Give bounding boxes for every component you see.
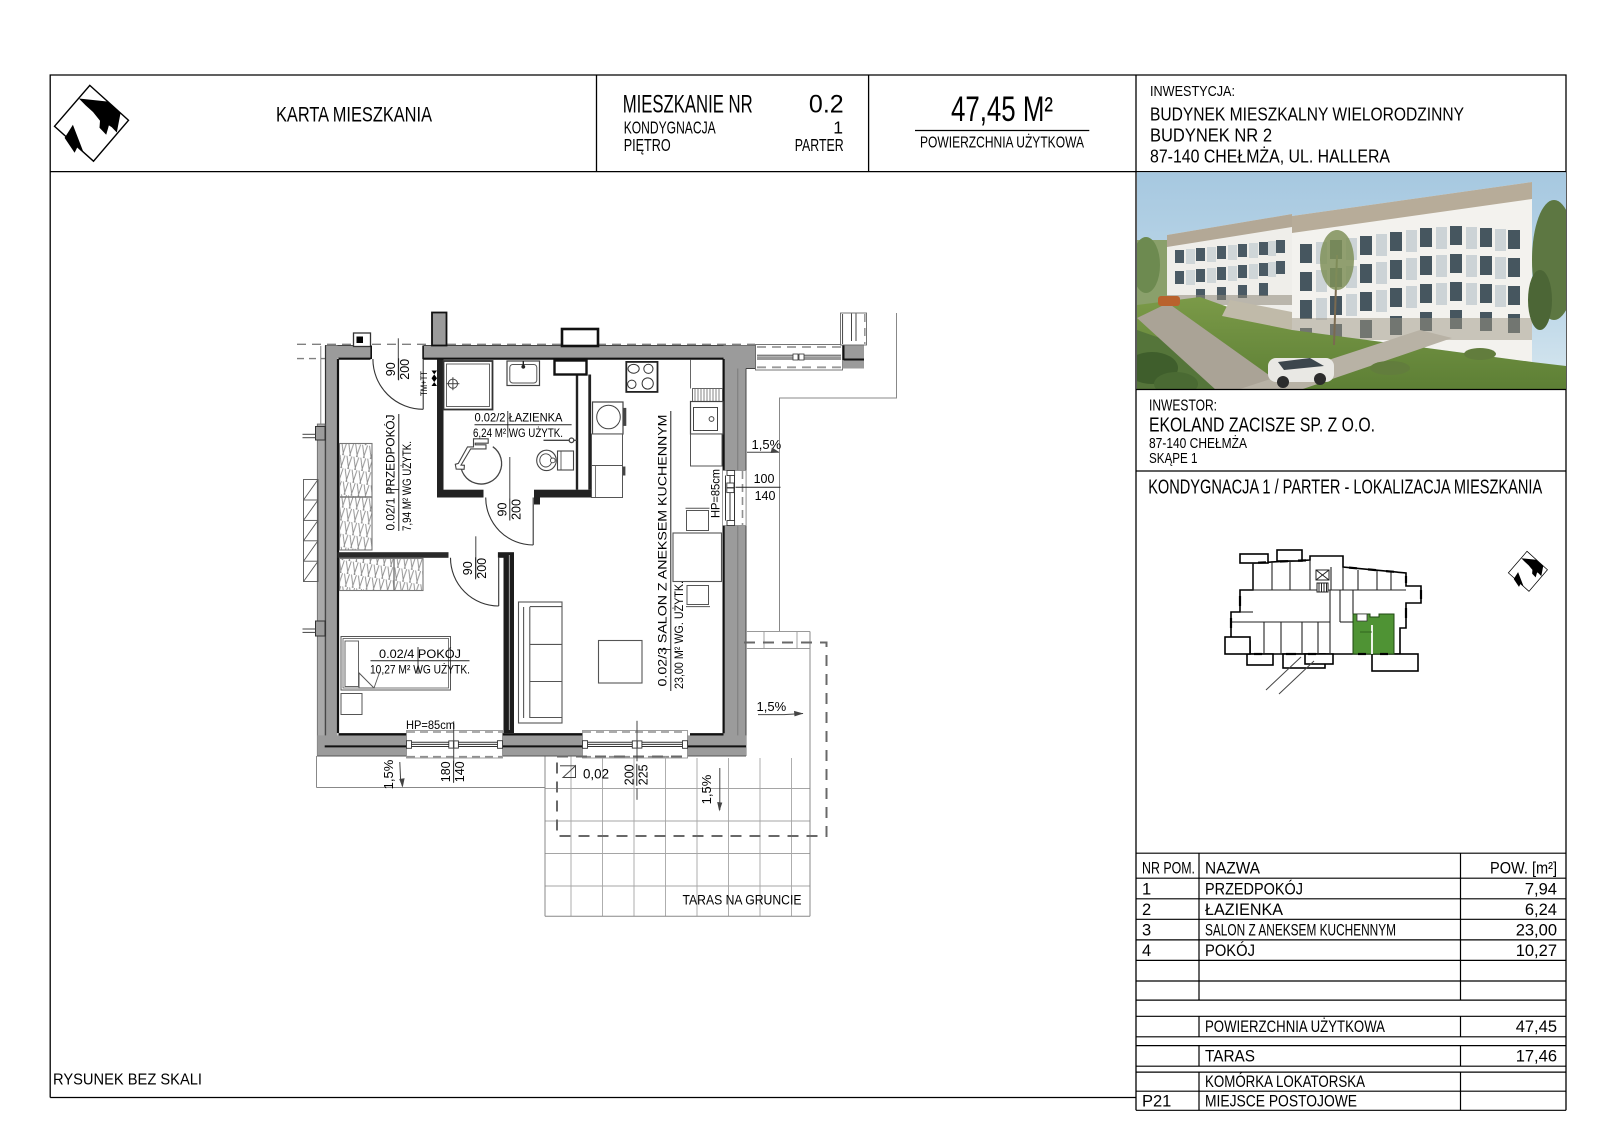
svg-text:KOMÓRKA LOKATORSKA: KOMÓRKA LOKATORSKA xyxy=(1205,1072,1365,1091)
svg-text:90: 90 xyxy=(461,561,475,575)
svg-text:1,5%: 1,5% xyxy=(381,759,396,789)
svg-text:PIĘTRO: PIĘTRO xyxy=(624,135,671,155)
svg-text:BUDYNEK NR 2: BUDYNEK NR 2 xyxy=(1150,125,1272,146)
svg-text:1,5%: 1,5% xyxy=(757,699,787,714)
svg-text:POW. [m²]: POW. [m²] xyxy=(1490,859,1557,877)
svg-text:90: 90 xyxy=(495,503,509,517)
svg-text:6,24 M² WG UŻYTK.: 6,24 M² WG UŻYTK. xyxy=(473,426,563,440)
svg-text:0.02/4 POKÓJ: 0.02/4 POKÓJ xyxy=(379,646,461,661)
svg-text:17,46: 17,46 xyxy=(1516,1048,1557,1066)
svg-text:EKOLAND ZACISZE SP. Z O.O.: EKOLAND ZACISZE SP. Z O.O. xyxy=(1149,414,1375,437)
svg-text:200: 200 xyxy=(398,359,412,380)
svg-text:1,5%: 1,5% xyxy=(699,774,714,804)
svg-text:6,24: 6,24 xyxy=(1525,901,1557,919)
svg-text:POKÓJ: POKÓJ xyxy=(1205,941,1255,960)
svg-text:TARAS: TARAS xyxy=(1205,1048,1255,1066)
svg-text:0,02: 0,02 xyxy=(583,767,609,782)
svg-text:23,00 M² WG. UŻYTK.: 23,00 M² WG. UŻYTK. xyxy=(672,581,686,689)
svg-text:140: 140 xyxy=(755,489,776,503)
svg-text:P21: P21 xyxy=(1142,1092,1171,1110)
svg-text:0.2: 0.2 xyxy=(809,91,844,119)
svg-text:0.02/1 PRZEDPOKÓJ: 0.02/1 PRZEDPOKÓJ xyxy=(383,415,398,531)
svg-text:3: 3 xyxy=(1142,922,1151,940)
svg-text:KONDYGNACJA 1 / PARTER - LOKAL: KONDYGNACJA 1 / PARTER - LOKALIZACJA MIE… xyxy=(1148,476,1542,498)
svg-text:BUDYNEK MIESZKALNY WIELORODZIN: BUDYNEK MIESZKALNY WIELORODZINNY xyxy=(1150,104,1464,125)
svg-text:7,94: 7,94 xyxy=(1525,881,1557,899)
svg-text:23,00: 23,00 xyxy=(1516,922,1557,940)
svg-text:225: 225 xyxy=(636,764,650,785)
svg-text:KARTA MIESZKANIA: KARTA MIESZKANIA xyxy=(276,104,432,127)
svg-text:10,27: 10,27 xyxy=(1516,942,1557,960)
svg-text:NR POM.: NR POM. xyxy=(1142,859,1195,877)
svg-text:1,5%: 1,5% xyxy=(752,437,782,452)
svg-text:140: 140 xyxy=(453,761,467,782)
svg-text:HP=85cm: HP=85cm xyxy=(406,718,455,732)
svg-text:47,45: 47,45 xyxy=(1516,1018,1557,1036)
svg-text:100: 100 xyxy=(754,472,775,486)
svg-text:RYSUNEK BEZ SKALI: RYSUNEK BEZ SKALI xyxy=(53,1072,202,1089)
svg-text:MIESZKANIE NR: MIESZKANIE NR xyxy=(623,91,753,119)
svg-text:TARAS NA GRUNCIE: TARAS NA GRUNCIE xyxy=(683,893,802,908)
svg-text:TM+TT: TM+TT xyxy=(419,371,430,396)
svg-text:180: 180 xyxy=(439,761,453,782)
svg-text:MIEJSCE POSTOJOWE: MIEJSCE POSTOJOWE xyxy=(1205,1092,1357,1110)
svg-text:POWIERZCHNIA UŻYTKOWA: POWIERZCHNIA UŻYTKOWA xyxy=(920,132,1084,151)
svg-text:4: 4 xyxy=(1142,942,1151,960)
svg-text:200: 200 xyxy=(509,499,523,520)
svg-text:PRZEDPOKÓJ: PRZEDPOKÓJ xyxy=(1205,880,1303,899)
svg-text:200: 200 xyxy=(475,558,489,579)
svg-text:90: 90 xyxy=(384,362,398,376)
svg-text:200: 200 xyxy=(622,764,636,785)
svg-text:87-140 CHEŁMŻA, UL. HALLERA: 87-140 CHEŁMŻA, UL. HALLERA xyxy=(1150,146,1391,167)
svg-text:1: 1 xyxy=(1142,881,1151,899)
svg-text:HP=85cm: HP=85cm xyxy=(709,469,723,518)
svg-text:NAZWA: NAZWA xyxy=(1205,859,1260,877)
svg-text:7,94 M² WG UŻYTK.: 7,94 M² WG UŻYTK. xyxy=(400,441,414,531)
svg-text:0.02/3 SALON Z ANEKSEM KUCHENN: 0.02/3 SALON Z ANEKSEM KUCHENNYM xyxy=(655,415,669,687)
svg-text:POWIERZCHNIA UŻYTKOWA: POWIERZCHNIA UŻYTKOWA xyxy=(1205,1017,1385,1036)
svg-text:2: 2 xyxy=(1142,901,1151,919)
svg-text:PARTER: PARTER xyxy=(795,135,844,155)
svg-text:INWESTOR:: INWESTOR: xyxy=(1149,398,1217,415)
svg-text:ŁAZIENKA: ŁAZIENKA xyxy=(1205,901,1283,919)
svg-text:47,45 M²: 47,45 M² xyxy=(951,90,1053,129)
svg-text:SKĄPE 1: SKĄPE 1 xyxy=(1149,450,1198,467)
svg-text:INWESTYCJA:: INWESTYCJA: xyxy=(1150,84,1235,100)
svg-text:SALON Z ANEKSEM KUCHENNYM: SALON Z ANEKSEM KUCHENNYM xyxy=(1205,922,1396,940)
svg-text:10,27 M² WG UŻYTK.: 10,27 M² WG UŻYTK. xyxy=(370,663,470,677)
svg-text:0.02/2 ŁAZIENKA: 0.02/2 ŁAZIENKA xyxy=(475,411,563,425)
